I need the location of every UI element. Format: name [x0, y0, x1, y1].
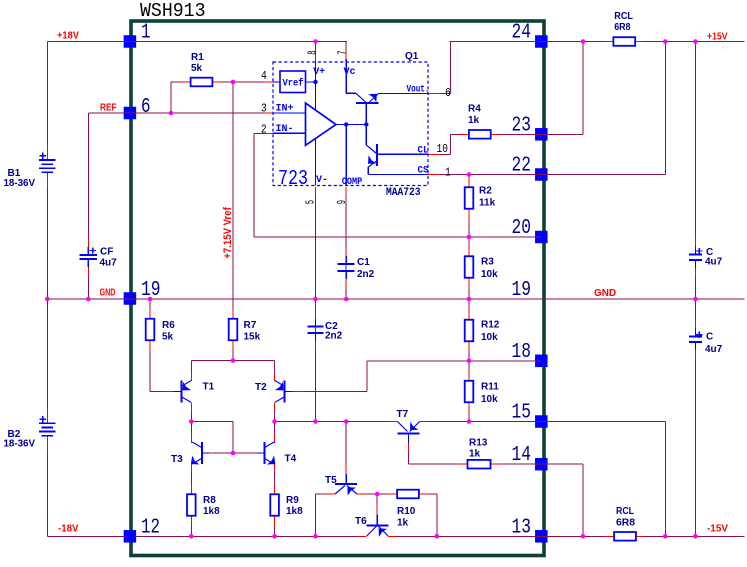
svg-text:4u7: 4u7: [705, 257, 723, 268]
svg-text:C: C: [706, 331, 713, 342]
svg-text:6: 6: [445, 87, 451, 100]
svg-text:10k: 10k: [481, 394, 498, 405]
svg-text:5: 5: [303, 200, 317, 204]
svg-text:23: 23: [512, 114, 532, 137]
svg-text:T3: T3: [171, 454, 183, 465]
svg-text:6R8: 6R8: [616, 518, 635, 529]
svg-text:CS: CS: [418, 166, 429, 177]
svg-text:10k: 10k: [481, 269, 498, 280]
svg-text:6: 6: [141, 96, 151, 119]
svg-text:3: 3: [261, 103, 267, 116]
svg-text:CL: CL: [418, 146, 429, 157]
svg-text:IN-: IN-: [276, 124, 294, 135]
svg-text:Vout.: Vout.: [407, 85, 430, 96]
svg-text:RCL: RCL: [616, 506, 634, 517]
svg-text:GND: GND: [100, 288, 116, 299]
svg-text:T6: T6: [355, 516, 367, 527]
svg-text:T4: T4: [285, 454, 297, 465]
svg-text:+18V: +18V: [57, 30, 79, 41]
svg-text:R4: R4: [468, 104, 481, 115]
svg-text:R8: R8: [203, 495, 216, 506]
svg-text:Vref: Vref: [283, 78, 304, 90]
svg-text:R11: R11: [481, 382, 499, 393]
svg-text:18: 18: [512, 341, 532, 364]
svg-text:18-36V: 18-36V: [4, 438, 36, 449]
svg-text:15: 15: [512, 402, 532, 425]
svg-text:4: 4: [261, 70, 267, 83]
svg-text:9: 9: [335, 200, 349, 204]
svg-text:6R8: 6R8: [614, 22, 631, 33]
svg-text:+7.15V Vref: +7.15V Vref: [222, 207, 234, 259]
svg-text:19: 19: [512, 279, 532, 302]
svg-text:GND: GND: [594, 288, 616, 299]
svg-text:8: 8: [305, 51, 319, 55]
svg-text:T2: T2: [255, 382, 267, 393]
svg-text:1k: 1k: [468, 115, 480, 126]
svg-text:-18V: -18V: [58, 523, 79, 534]
svg-text:R2: R2: [479, 186, 492, 197]
svg-text:10: 10: [437, 143, 449, 156]
svg-text:CF: CF: [100, 247, 113, 258]
svg-text:1k8: 1k8: [286, 506, 303, 517]
svg-text:5k: 5k: [191, 63, 203, 74]
svg-text:R12: R12: [481, 320, 500, 331]
svg-text:WSH913: WSH913: [140, 0, 206, 22]
svg-text:15k: 15k: [244, 332, 261, 343]
svg-text:4u7: 4u7: [100, 258, 118, 269]
svg-text:-15V: -15V: [707, 523, 728, 534]
svg-text:R6: R6: [162, 320, 175, 331]
svg-text:2: 2: [261, 124, 267, 137]
svg-text:T1: T1: [203, 382, 215, 393]
svg-text:7: 7: [336, 51, 350, 55]
svg-text:20: 20: [512, 217, 532, 240]
svg-text:1k8: 1k8: [203, 506, 220, 517]
svg-text:5k: 5k: [162, 332, 174, 343]
svg-text:R13: R13: [469, 438, 488, 449]
svg-text:1: 1: [141, 22, 151, 45]
svg-text:24: 24: [512, 22, 532, 45]
svg-text:723: 723: [278, 168, 308, 191]
svg-text:1: 1: [445, 167, 451, 180]
svg-text:11k: 11k: [479, 198, 496, 209]
svg-text:IN+: IN+: [276, 104, 294, 115]
svg-text:10k: 10k: [481, 332, 498, 343]
svg-text:R1: R1: [191, 52, 204, 63]
svg-text:+15V: +15V: [707, 31, 728, 42]
svg-text:C1: C1: [357, 257, 370, 268]
svg-text:Q1: Q1: [405, 51, 419, 62]
svg-text:2n2: 2n2: [325, 331, 343, 342]
svg-text:4u7: 4u7: [705, 344, 723, 355]
svg-text:Vc: Vc: [344, 67, 356, 78]
svg-text:1k: 1k: [397, 518, 409, 529]
svg-text:19: 19: [141, 279, 161, 302]
svg-text:T7: T7: [397, 409, 409, 420]
svg-text:18-36V: 18-36V: [4, 178, 36, 189]
svg-text:V+: V+: [313, 67, 325, 78]
svg-text:R7: R7: [244, 320, 257, 331]
svg-text:1k: 1k: [469, 449, 481, 460]
svg-text:14: 14: [512, 444, 532, 467]
svg-text:22: 22: [512, 154, 532, 177]
svg-text:13: 13: [512, 516, 532, 539]
svg-text:REF: REF: [100, 102, 117, 113]
svg-text:MAA723: MAA723: [386, 187, 421, 199]
svg-text:RCL: RCL: [614, 11, 633, 22]
svg-text:R10: R10: [397, 506, 416, 517]
svg-text:V-: V-: [316, 175, 328, 186]
svg-text:2n2: 2n2: [357, 269, 375, 280]
svg-text:R9: R9: [286, 495, 299, 506]
svg-text:R3: R3: [481, 257, 494, 268]
svg-text:COMP: COMP: [342, 177, 363, 188]
svg-text:12: 12: [141, 516, 160, 539]
svg-text:T5: T5: [325, 475, 337, 486]
